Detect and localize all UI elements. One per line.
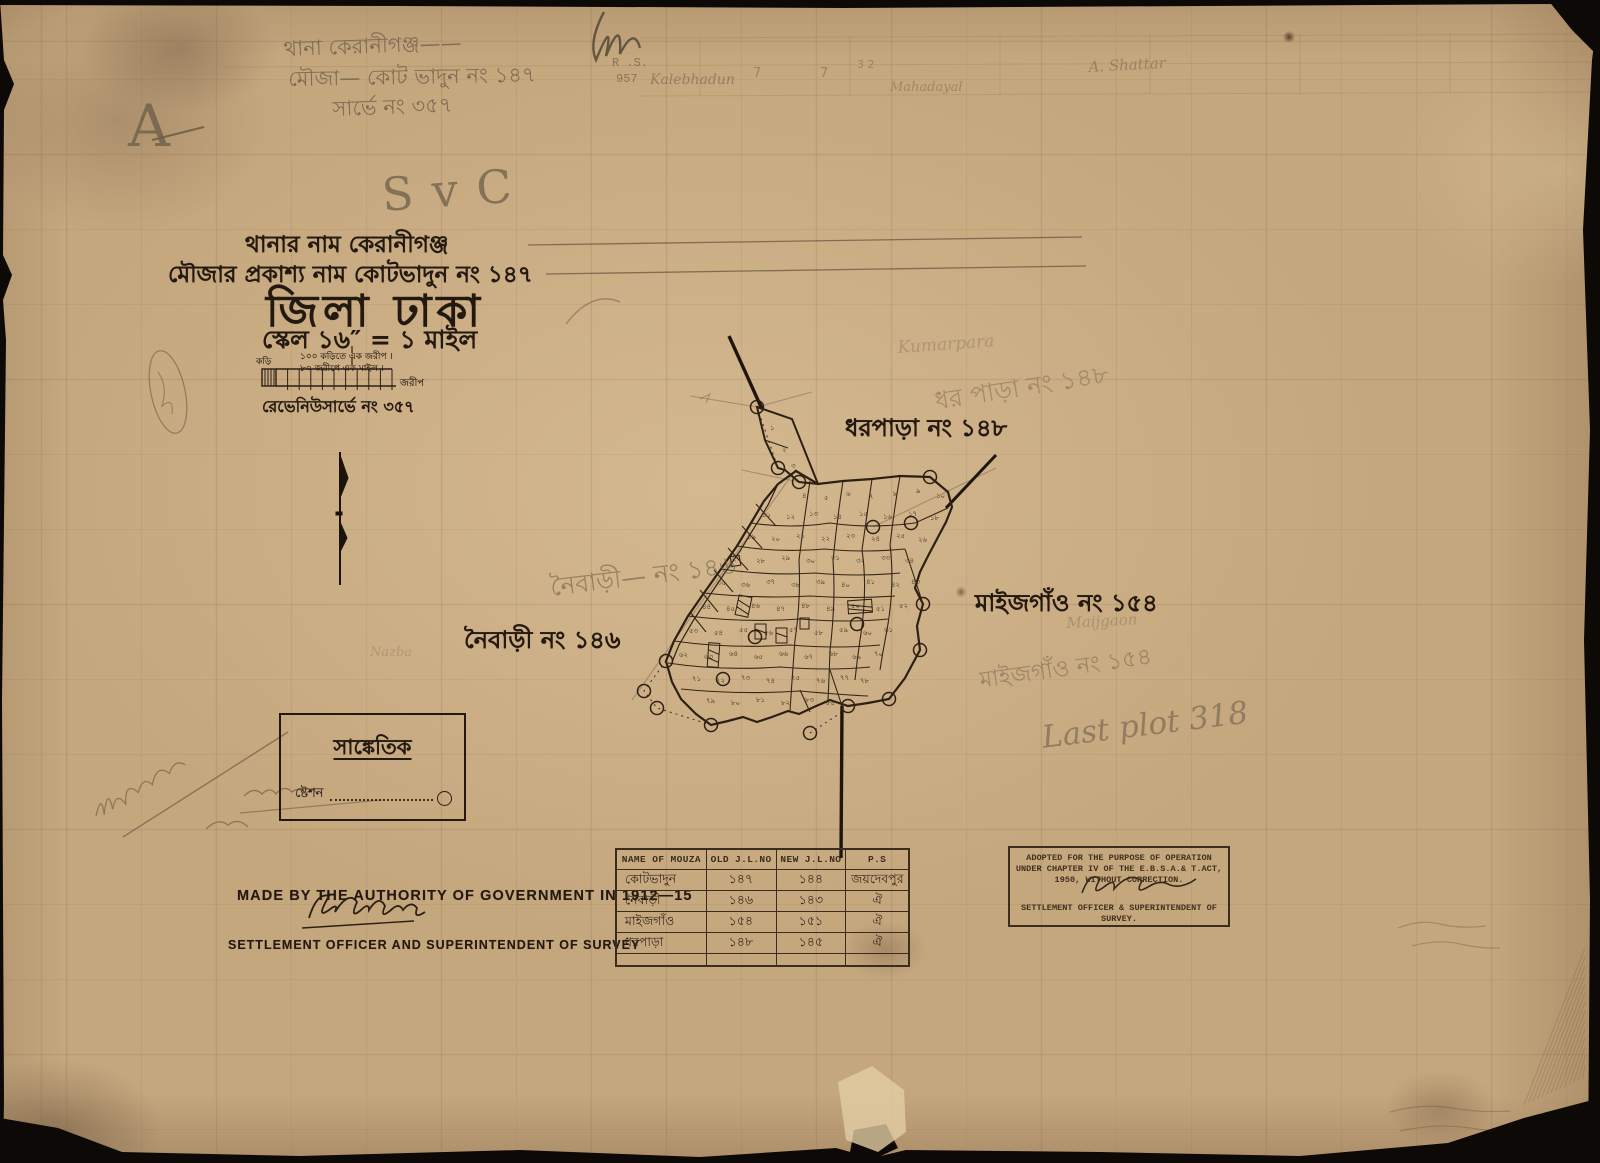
plot-number: ৮৩ bbox=[805, 696, 815, 704]
mouza-table: NAME OF MOUZA OLD J.L.NO NEW J.L.NO P.S … bbox=[615, 848, 910, 967]
plot-number: ১৭ bbox=[908, 510, 917, 518]
mouza-table-cell: ১৪৪ bbox=[776, 869, 846, 891]
plot-number: ৪৮ bbox=[801, 602, 811, 610]
plot-number: ৮ bbox=[893, 490, 898, 498]
footer-officer: SETTLEMENT OFFICER AND SUPERINTENDENT OF… bbox=[228, 938, 640, 952]
legend-title: সাঙ্কেতিক bbox=[281, 731, 464, 766]
plot-number: ২৯ bbox=[781, 554, 791, 562]
plot-number: ২৫ bbox=[896, 532, 905, 540]
plot-number: ৪৯ bbox=[826, 605, 836, 613]
plot-number: ১৫ bbox=[859, 510, 868, 518]
plot-number: ৭০ bbox=[874, 650, 883, 658]
plot-number: ৩৭ bbox=[766, 578, 775, 586]
plot-number: ১৬ bbox=[883, 513, 893, 521]
mouza-table-empty-row bbox=[616, 954, 909, 967]
header-rule-lines bbox=[528, 237, 1086, 274]
pencil-maijgaon-en: Maijgaon bbox=[1066, 610, 1138, 632]
plot-number: ৫ bbox=[824, 494, 829, 502]
plot-number: ৭৬ bbox=[816, 677, 826, 685]
mouza-table-cell bbox=[776, 954, 846, 967]
plot-number: ৬৫ bbox=[754, 653, 763, 661]
legend-dotted-line bbox=[330, 798, 433, 801]
pencil-rs: R .S. bbox=[612, 56, 648, 70]
plot-number: ৭২ bbox=[716, 677, 725, 685]
stamp-line2: UNDER CHAPTER IV OF THE E.B.S.A.& T.ACT, bbox=[1010, 864, 1228, 875]
hatch-line bbox=[1529, 957, 1586, 1103]
mouza-table-cell bbox=[616, 954, 706, 967]
pencil-rs-no: 957 bbox=[616, 72, 638, 86]
plot-number: ৮০ bbox=[731, 699, 740, 707]
station-symbol-icon bbox=[437, 791, 452, 806]
mouza-table-header: NAME OF MOUZA OLD J.L.NO NEW J.L.NO P.S bbox=[616, 849, 909, 870]
plot-number: ৩ bbox=[791, 462, 796, 470]
col-old-jl-no: OLD J.L.NO bbox=[706, 849, 776, 870]
plot-number: ৪৪ bbox=[702, 603, 711, 611]
edge-hatch-lines bbox=[1524, 948, 1585, 1105]
plot-number: ৪০ bbox=[841, 581, 850, 589]
hatch-line bbox=[1551, 1002, 1585, 1093]
plot-number: ৬০ bbox=[863, 629, 872, 637]
plot-number: ৫৯ bbox=[839, 626, 849, 634]
station-circle bbox=[851, 618, 864, 631]
plot-number: ২১ bbox=[796, 532, 805, 540]
pencil-mahadayal: Mahadayal bbox=[890, 80, 963, 95]
plot-number: ৩০ bbox=[806, 557, 815, 565]
plot-number: ৫৭ bbox=[789, 626, 798, 634]
mouza-table-cell: ১৪৬ bbox=[706, 890, 776, 912]
pencil-seven-a: 7 bbox=[753, 66, 761, 81]
mouza-table-cell: ১৪৩ bbox=[776, 890, 846, 912]
pencil-thirtytwo: 3 2 bbox=[857, 58, 875, 71]
plot-number: ৩২ bbox=[856, 557, 865, 565]
plot-number: ৭৭ bbox=[840, 674, 849, 682]
plot-number: ১৯ bbox=[747, 533, 757, 541]
plot-number: ২৮ bbox=[756, 557, 766, 565]
torn-paper-highlight bbox=[838, 1066, 906, 1152]
mouza-table-cell: নৈবাড়ী bbox=[616, 890, 706, 912]
plot-number: ৪ bbox=[802, 492, 807, 500]
mouza-table-cell: ধরপাড়া bbox=[616, 932, 706, 954]
pencil-swoosh bbox=[566, 299, 620, 324]
plot-number: ২ bbox=[782, 446, 787, 454]
plot-number: ৮১ bbox=[756, 696, 765, 704]
plot-number: ৩১ bbox=[831, 554, 840, 562]
plot-number: ৫১ bbox=[876, 605, 885, 613]
label-naibari: নৈবাড়ী নং ১৪৬ bbox=[464, 622, 620, 662]
plot-number: ২৪ bbox=[871, 535, 880, 543]
plot-number: ৮২ bbox=[781, 699, 790, 707]
mouza-table-cell: ১৪৮ bbox=[706, 932, 776, 954]
scalebar-right-label: জরীপ bbox=[400, 376, 424, 393]
legend-box: সাঙ্কেতিক ষ্টেশন bbox=[279, 713, 466, 821]
plot-number: ৭ bbox=[869, 493, 874, 501]
col-name-of-mouza: NAME OF MOUZA bbox=[616, 849, 706, 870]
plot-number: ৭৪ bbox=[766, 677, 775, 685]
stamp-line4: SETTLEMENT OFFICER & SUPERINTENDENT OF bbox=[1010, 903, 1228, 914]
plot-number: ১৩ bbox=[809, 510, 819, 518]
plot-number: ২০ bbox=[771, 535, 780, 543]
plot-number: ১০ bbox=[936, 492, 945, 500]
mouza-table-body: কোটভাদুন১৪৭১৪৪জয়দেবপুরনৈবাড়ী১৪৬১৪৩ঐমাই… bbox=[616, 870, 909, 967]
plot-number: ৩৮ bbox=[791, 581, 801, 589]
plot-number: ৬৭ bbox=[804, 653, 813, 661]
mouza-table-cell: ১৪৭ bbox=[706, 869, 776, 891]
plot-number: ৪২ bbox=[891, 581, 900, 589]
plot-number: ৬২ bbox=[679, 651, 688, 659]
plot-number: ৩৬ bbox=[741, 581, 751, 589]
plot-number: ৫০ bbox=[851, 602, 860, 610]
plot-number: ৪৩ bbox=[911, 578, 921, 586]
map-drawing-layer: ১২৩৪৫৬৭৮৯১০১১১২১৩১৪১৫১৬১৭১৮১৯২০২১২২২৩২৪২… bbox=[0, 0, 1600, 1163]
plot-number: ১ bbox=[770, 424, 775, 432]
mouza-table-cell: ঐ bbox=[846, 890, 909, 912]
mouza-table-row: নৈবাড়ী১৪৬১৪৩ঐ bbox=[616, 891, 909, 912]
scanned-map-sheet: ১২৩৪৫৬৭৮৯১০১১১২১৩১৪১৫১৬১৭১৮১৯২০২১২২২৩২৪২… bbox=[0, 0, 1600, 1163]
stamp-line1: ADOPTED FOR THE PURPOSE OF OPERATION bbox=[1010, 853, 1228, 864]
plot-number: ৬ bbox=[846, 490, 851, 498]
adoption-stamp: ADOPTED FOR THE PURPOSE OF OPERATION UND… bbox=[1008, 846, 1230, 927]
plot-number: ৭৮ bbox=[860, 677, 870, 685]
plot-number: ৬৬ bbox=[779, 650, 789, 658]
plot-number: ৯ bbox=[916, 487, 921, 495]
mouza-table-cell bbox=[706, 954, 776, 967]
plot-number: ৭১ bbox=[692, 675, 701, 683]
scalebar-left-label: কড়ি bbox=[256, 354, 271, 369]
title-revenue-survey: রেভেনিউসার্ভে নং ৩৫৭ bbox=[262, 394, 415, 421]
stamp-line5: SURVEY. bbox=[1010, 914, 1228, 925]
plot-number: ৪৭ bbox=[776, 605, 785, 613]
legend-station-label: ষ্টেশন bbox=[295, 784, 324, 805]
hatch-line bbox=[1583, 1065, 1586, 1079]
pencil-nazba-note: Nazba bbox=[370, 645, 412, 660]
plot-number: ১৪ bbox=[833, 513, 842, 521]
mouza-table-cell bbox=[846, 954, 909, 967]
mouza-table-cell: ১৫১ bbox=[776, 911, 846, 933]
plot-number: ৫২ bbox=[899, 602, 908, 610]
plot-number: ৫৪ bbox=[714, 629, 723, 637]
plot-number: ৬৩ bbox=[704, 653, 714, 661]
plot-number: ৩৯ bbox=[816, 578, 826, 586]
plot-number: ১৮ bbox=[930, 514, 940, 522]
plot-number: ৬৮ bbox=[829, 650, 839, 658]
mouza-table-cell: ১৪৫ bbox=[776, 932, 846, 954]
plot-number: ৬৯ bbox=[852, 653, 862, 661]
plot-number: ৭৩ bbox=[741, 674, 751, 682]
pencil-kalebhadun: Kalebhadun bbox=[650, 72, 735, 88]
plot-number: ৭৫ bbox=[791, 674, 800, 682]
plot-number: ৬৪ bbox=[729, 650, 738, 658]
mouza-table-row: ধরপাড়া১৪৮১৪৫ঐ bbox=[616, 933, 909, 954]
plot-number: ৫৬ bbox=[764, 629, 774, 637]
mouza-table-cell: ঐ bbox=[846, 911, 909, 933]
plot-number: ২২ bbox=[821, 535, 830, 543]
scalebar-caption-bottom: ৮০ জরীপে এক মাইল । bbox=[300, 361, 384, 376]
plot-number: ৪৬ bbox=[751, 602, 761, 610]
plot-number: ৬১ bbox=[884, 626, 893, 634]
mouza-table-cell: ঐ bbox=[846, 932, 909, 954]
station-circle bbox=[651, 702, 664, 715]
col-new-jl-no: NEW J.L.NO bbox=[776, 849, 846, 870]
pencil-monogram-a: A bbox=[128, 92, 170, 160]
mouza-table-cell: ১৫৪ bbox=[706, 911, 776, 933]
plot-number: ৭৯ bbox=[706, 697, 716, 705]
plot-number: ৪৫ bbox=[726, 605, 735, 613]
plot-number: ১২ bbox=[786, 513, 795, 521]
mouza-table-cell: কোটভাদুন bbox=[616, 869, 706, 891]
plot-number: ৪১ bbox=[866, 578, 875, 586]
plot-number: ৩৩ bbox=[881, 554, 891, 562]
plot-number: ৩৪ bbox=[905, 557, 914, 565]
plot-number: ৫৩ bbox=[689, 627, 699, 635]
plot-number: ১১ bbox=[762, 511, 771, 519]
plot-number: ৫৫ bbox=[739, 626, 748, 634]
ink-bracket-mark bbox=[336, 452, 348, 585]
pencil-svc: S v C bbox=[380, 159, 515, 222]
plot-number: ২৩ bbox=[846, 532, 856, 540]
plot-number: ২৬ bbox=[918, 536, 928, 544]
pencil-seven-b: 7 bbox=[820, 66, 828, 81]
pencil-note-survey-no: সার্ভে নং ৩৫৭ bbox=[332, 89, 453, 128]
stamp-line3: 1950, WITHOUT CORRECTION. bbox=[1010, 875, 1228, 886]
plot-number: ৮৪ bbox=[826, 699, 835, 707]
col-ps: P.S bbox=[846, 849, 909, 870]
mouza-table-cell: জয়দেবপুর bbox=[846, 869, 909, 891]
mouza-table-row: মাইজগাঁও১৫৪১৫১ঐ bbox=[616, 912, 909, 933]
plot-number: ৫৮ bbox=[814, 629, 824, 637]
mouza-table-row: কোটভাদুন১৪৭১৪৪জয়দেবপুর bbox=[616, 870, 909, 891]
mouza-table-cell: মাইজগাঁও bbox=[616, 911, 706, 933]
